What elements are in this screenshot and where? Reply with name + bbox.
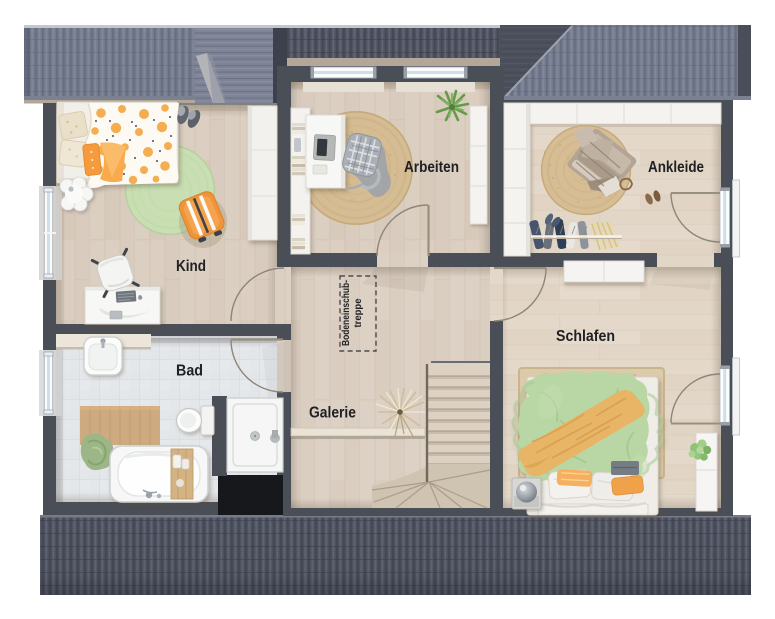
svg-text:Ankleide: Ankleide [648,159,704,176]
svg-text:Bodeneinschub-: Bodeneinschub- [341,280,352,346]
svg-text:Arbeiten: Arbeiten [404,159,459,176]
svg-text:treppe: treppe [353,298,364,327]
svg-text:Schlafen: Schlafen [556,328,615,345]
svg-text:Bad: Bad [176,363,203,380]
svg-text:Kind: Kind [176,258,206,275]
svg-text:Galerie: Galerie [309,405,356,422]
